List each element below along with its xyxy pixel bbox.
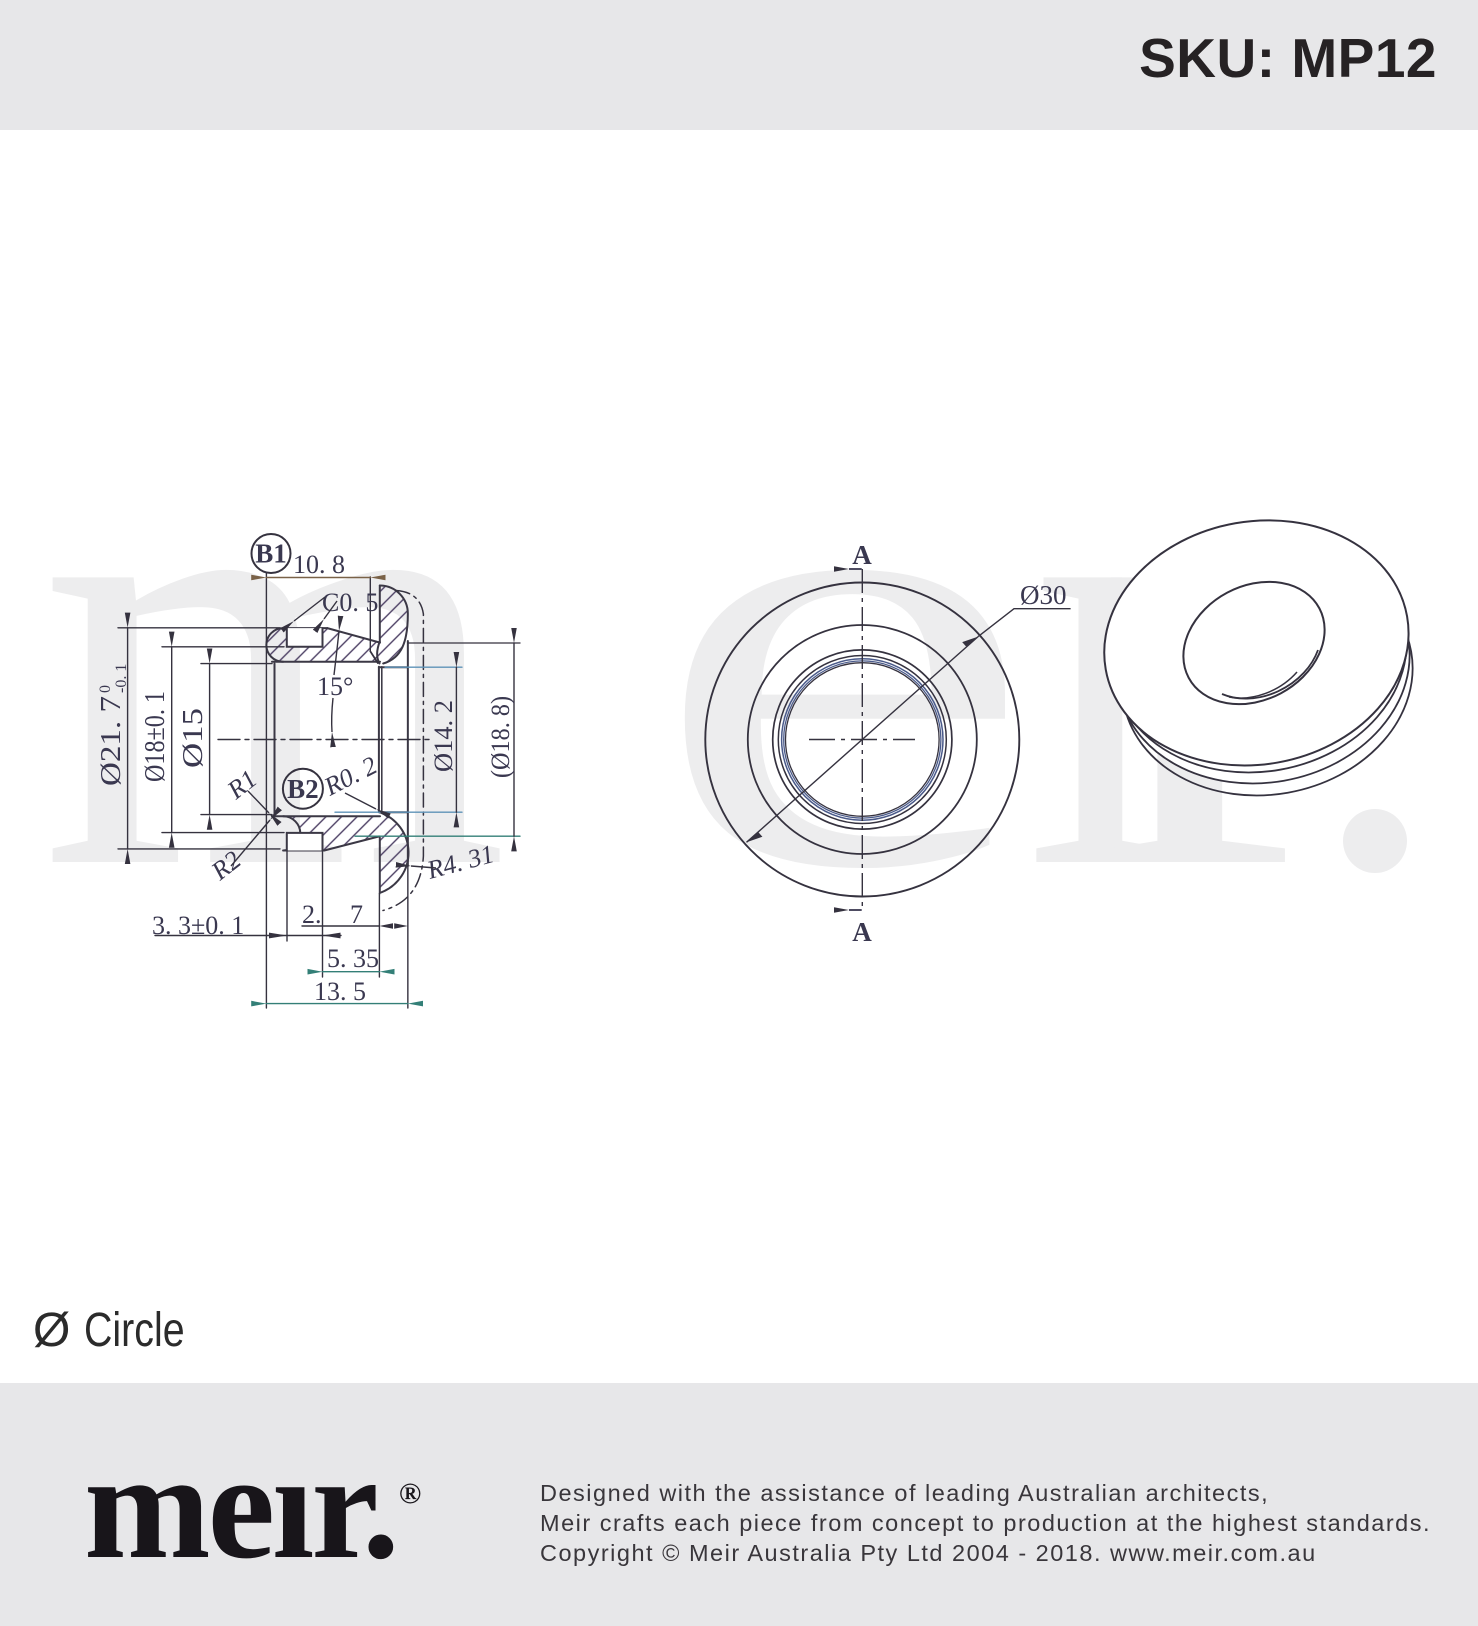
svg-text:C0. 5: C0. 5 bbox=[322, 588, 378, 617]
svg-text:A: A bbox=[852, 540, 872, 570]
svg-text:Ø15: Ø15 bbox=[177, 708, 209, 768]
svg-text:5. 35: 5. 35 bbox=[327, 944, 379, 973]
svg-text:3. 3±0. 1: 3. 3±0. 1 bbox=[152, 911, 244, 940]
svg-text:e: e bbox=[651, 311, 1035, 997]
svg-text:Ø30: Ø30 bbox=[1020, 580, 1067, 610]
svg-text:Ø18±0. 1: Ø18±0. 1 bbox=[139, 691, 171, 782]
svg-text:Ø14. 2: Ø14. 2 bbox=[429, 700, 458, 772]
svg-text:(Ø18. 8): (Ø18. 8) bbox=[486, 696, 515, 778]
svg-text:Ø21. 7: Ø21. 7 bbox=[95, 696, 127, 786]
svg-text:7: 7 bbox=[350, 900, 363, 929]
svg-text:10. 8: 10. 8 bbox=[293, 550, 345, 579]
svg-text:A: A bbox=[852, 917, 872, 947]
svg-text:13. 5: 13. 5 bbox=[314, 977, 366, 1006]
svg-text:0: 0 bbox=[97, 685, 114, 693]
svg-text:B2: B2 bbox=[287, 774, 319, 804]
svg-text:B1: B1 bbox=[255, 539, 287, 569]
svg-text:15°: 15° bbox=[317, 672, 353, 701]
svg-text:-0. 1: -0. 1 bbox=[113, 664, 130, 693]
svg-text:2.: 2. bbox=[302, 900, 322, 929]
